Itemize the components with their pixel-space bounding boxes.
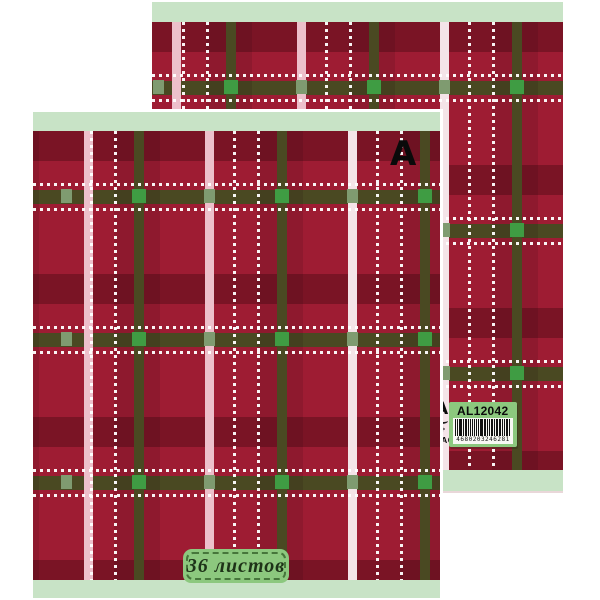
plaid-sage-square xyxy=(296,80,307,94)
barcode-bar xyxy=(500,419,501,436)
plaid-sage-square xyxy=(61,475,72,489)
barcode-bar xyxy=(499,419,500,436)
barcode-bar xyxy=(468,419,469,436)
plaid-dotted-line-horizontal xyxy=(33,326,440,329)
plaid-green-square xyxy=(418,189,432,203)
sheets-count-label: 36 листов xyxy=(183,549,289,583)
plaid-sage-square xyxy=(204,189,215,203)
plaid-sage-square xyxy=(347,189,358,203)
barcode-bar xyxy=(472,419,473,436)
plaid-sage-square xyxy=(204,475,215,489)
plaid-green-square xyxy=(275,475,289,489)
plaid-green-square xyxy=(367,80,381,94)
plaid-dotted-line-vertical xyxy=(114,131,117,580)
barcode-bar xyxy=(496,419,498,436)
barcode-bar xyxy=(506,419,507,436)
mint-band-top xyxy=(152,2,563,22)
plaid-dotted-line-horizontal xyxy=(33,494,440,497)
plaid-sage-square xyxy=(347,475,358,489)
plaid-sage-square xyxy=(439,223,450,237)
barcode-bar xyxy=(480,419,481,436)
plaid-green-square xyxy=(275,332,289,346)
barcode-bar xyxy=(489,419,490,436)
barcode-bar xyxy=(504,419,505,436)
article-code: AL12042 xyxy=(457,404,508,418)
mint-band-top xyxy=(33,112,440,131)
plaid-green-square xyxy=(132,475,146,489)
barcode-bar xyxy=(507,419,508,436)
barcode-bar xyxy=(478,419,479,436)
barcode-bar xyxy=(455,419,456,436)
barcode-bar xyxy=(474,419,475,436)
plaid-pattern-front xyxy=(33,131,440,580)
plaid-green-square xyxy=(510,223,524,237)
barcode-bar xyxy=(470,419,471,436)
barcode-bar xyxy=(476,419,478,436)
barcode-bar xyxy=(465,419,466,436)
barcode-bars xyxy=(455,419,511,436)
barcode-bar xyxy=(492,419,493,436)
plaid-sage-square xyxy=(204,332,215,346)
barcode: 4680203246281 xyxy=(453,418,513,444)
barcode-bar xyxy=(463,419,464,436)
product-image-canvas: A 6+ EAC AL12042 4680203246281 A 36 лист… xyxy=(0,0,600,600)
plaid-dotted-line-vertical xyxy=(90,131,93,580)
plaid-green-square xyxy=(418,332,432,346)
plaid-green-square xyxy=(418,475,432,489)
plaid-green-square xyxy=(510,366,524,380)
plaid-sage-square xyxy=(153,80,164,94)
barcode-bar xyxy=(502,419,503,436)
plaid-dotted-line-vertical xyxy=(400,131,403,580)
barcode-bar xyxy=(481,419,482,436)
plaid-dotted-line-horizontal xyxy=(33,351,440,354)
plaid-dotted-line-vertical xyxy=(376,131,379,580)
barcode-bar xyxy=(494,419,495,436)
plaid-dotted-line-horizontal xyxy=(152,99,563,102)
barcode-bar xyxy=(460,419,461,436)
plaid-sage-square xyxy=(61,332,72,346)
plaid-dotted-line-horizontal xyxy=(33,208,440,211)
plaid-sage-square xyxy=(347,332,358,346)
plaid-dotted-line-vertical xyxy=(257,131,260,580)
sheets-count-text: 36 листов xyxy=(187,555,286,578)
plaid-sage-square xyxy=(439,366,450,380)
notebook-front-cover: A 36 листов xyxy=(33,112,440,598)
barcode-bar xyxy=(466,419,467,436)
barcode-bar xyxy=(491,419,492,436)
plaid-dotted-line-horizontal xyxy=(33,469,440,472)
plaid-sage-square xyxy=(439,80,450,94)
barcode-bar xyxy=(457,419,458,436)
barcode-label: AL12042 4680203246281 xyxy=(449,402,517,447)
barcode-bar xyxy=(459,419,460,436)
barcode-bar xyxy=(487,419,488,436)
plaid-green-square xyxy=(132,189,146,203)
barcode-digits: 4680203246281 xyxy=(453,436,513,443)
plaid-sage-square xyxy=(61,189,72,203)
plaid-green-square xyxy=(510,80,524,94)
plaid-dotted-line-vertical xyxy=(233,131,236,580)
plaid-green-square xyxy=(224,80,238,94)
brand-letter-a: A xyxy=(390,137,416,171)
barcode-bar xyxy=(509,419,510,436)
barcode-bar xyxy=(485,419,486,436)
plaid-green-square xyxy=(132,332,146,346)
plaid-dotted-line-horizontal xyxy=(33,183,440,186)
plaid-dotted-line-horizontal xyxy=(152,74,563,77)
barcode-bar xyxy=(484,419,485,436)
plaid-green-square xyxy=(275,189,289,203)
